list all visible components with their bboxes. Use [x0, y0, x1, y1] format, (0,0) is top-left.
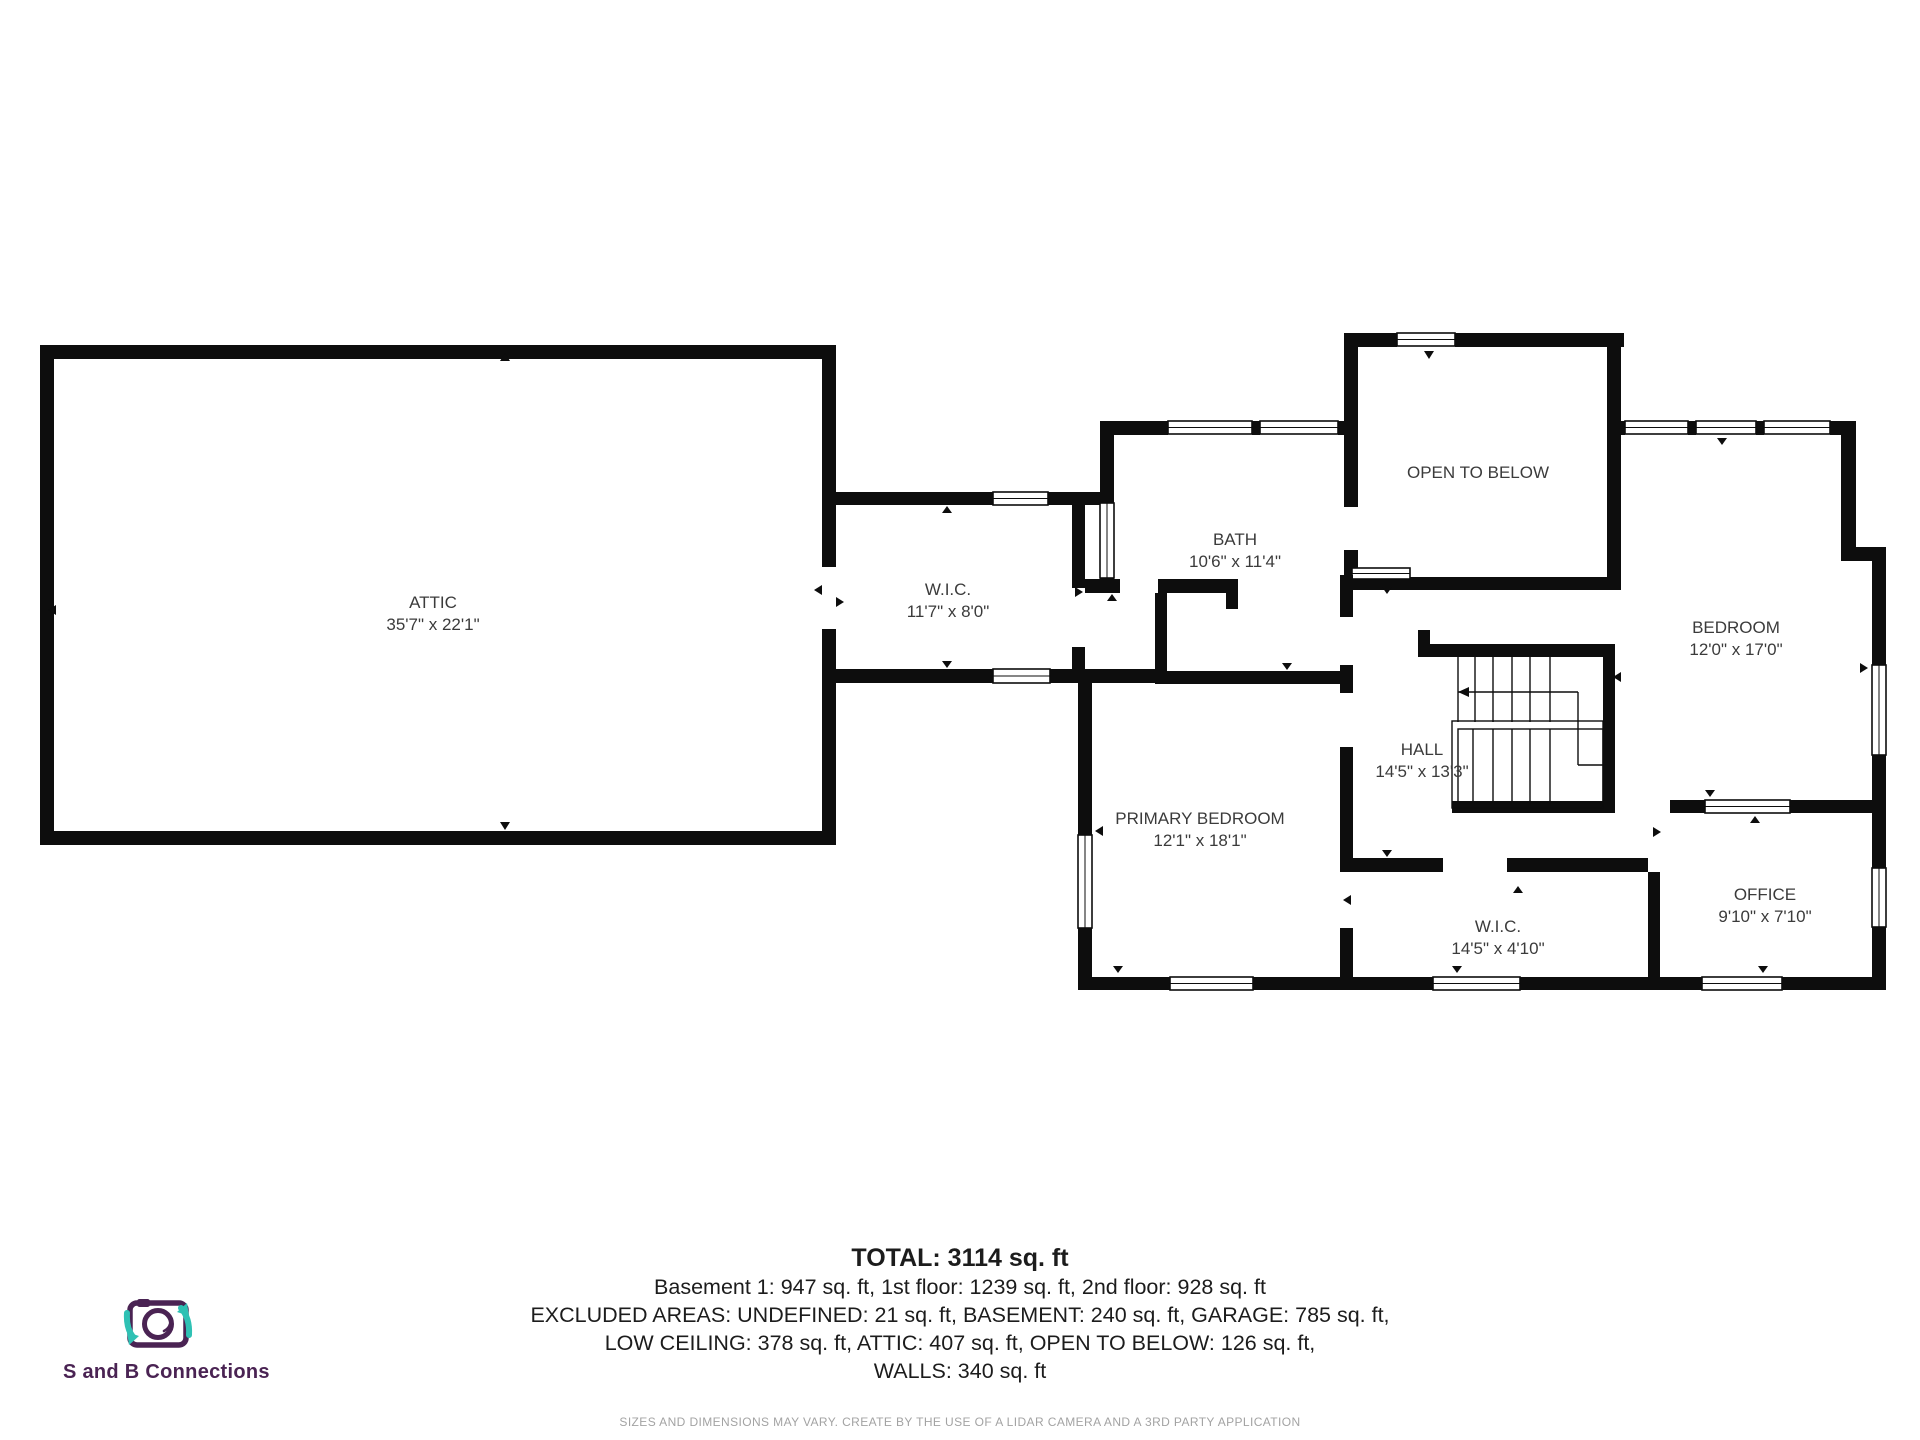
logo-text: S and B Connections: [63, 1361, 253, 1384]
room-dims: 14'5" x 4'10": [1451, 938, 1544, 960]
room-name: HALL: [1375, 739, 1468, 761]
room-dims: 12'1" x 18'1": [1115, 830, 1284, 852]
floor-areas: Basement 1: 947 sq. ft, 1st floor: 1239 …: [0, 1273, 1920, 1301]
room-label-wic-bottom: W.I.C. 14'5" x 4'10": [1451, 916, 1544, 960]
room-name: W.I.C.: [907, 579, 990, 601]
room-dims: 11'7" x 8'0": [907, 601, 990, 623]
door-ticks: [48, 351, 1868, 973]
hall-walls: [1340, 575, 1648, 872]
walls-area: WALLS: 340 sq. ft: [0, 1357, 1920, 1385]
room-name: OPEN TO BELOW: [1407, 462, 1549, 484]
wic-mid-windows: [993, 492, 1050, 683]
room-label-office: OFFICE 9'10" x 7'10": [1718, 884, 1811, 928]
room-label-attic: ATTIC 35'7" x 22'1": [386, 592, 479, 636]
room-name: ATTIC: [386, 592, 479, 614]
room-dims: 14'5" x 13'3": [1375, 761, 1468, 783]
open-to-below-windows: [1352, 333, 1455, 579]
room-dims: 10'6" x 11'4": [1189, 551, 1281, 573]
room-label-hall: HALL 14'5" x 13'3": [1375, 739, 1468, 783]
room-label-primary-bedroom: PRIMARY BEDROOM 12'1" x 18'1": [1115, 808, 1284, 852]
room-label-bath: BATH 10'6" x 11'4": [1189, 529, 1281, 573]
company-logo: S and B Connections: [63, 1296, 253, 1384]
total-area: TOTAL: 3114 sq. ft: [0, 1243, 1920, 1273]
staircase: [1452, 657, 1603, 808]
room-name: W.I.C.: [1451, 916, 1544, 938]
room-name: BATH: [1189, 529, 1281, 551]
room-name: BEDROOM: [1689, 617, 1782, 639]
room-label-open-to-below: OPEN TO BELOW: [1407, 462, 1549, 484]
room-dims: 9'10" x 7'10": [1718, 906, 1811, 928]
room-dims: 35'7" x 22'1": [386, 614, 479, 636]
floorplan-drawing: [0, 0, 1920, 1440]
excluded-areas-2: LOW CEILING: 378 sq. ft, ATTIC: 407 sq. …: [0, 1329, 1920, 1357]
area-summary: TOTAL: 3114 sq. ft Basement 1: 947 sq. f…: [0, 1243, 1920, 1385]
room-label-wic-mid: W.I.C. 11'7" x 8'0": [907, 579, 990, 623]
disclaimer-text: SIZES AND DIMENSIONS MAY VARY. CREATE BY…: [0, 1415, 1920, 1429]
room-label-bedroom: BEDROOM 12'0" x 17'0": [1689, 617, 1782, 661]
room-dims: 12'0" x 17'0": [1689, 639, 1782, 661]
floorplan-page: ATTIC 35'7" x 22'1" W.I.C. 11'7" x 8'0" …: [0, 0, 1920, 1440]
room-name: PRIMARY BEDROOM: [1115, 808, 1284, 830]
stairs-direction-arrow: [1458, 687, 1469, 697]
excluded-areas-1: EXCLUDED AREAS: UNDEFINED: 21 sq. ft, BA…: [0, 1301, 1920, 1329]
room-name: OFFICE: [1718, 884, 1811, 906]
camera-icon: [113, 1296, 203, 1354]
